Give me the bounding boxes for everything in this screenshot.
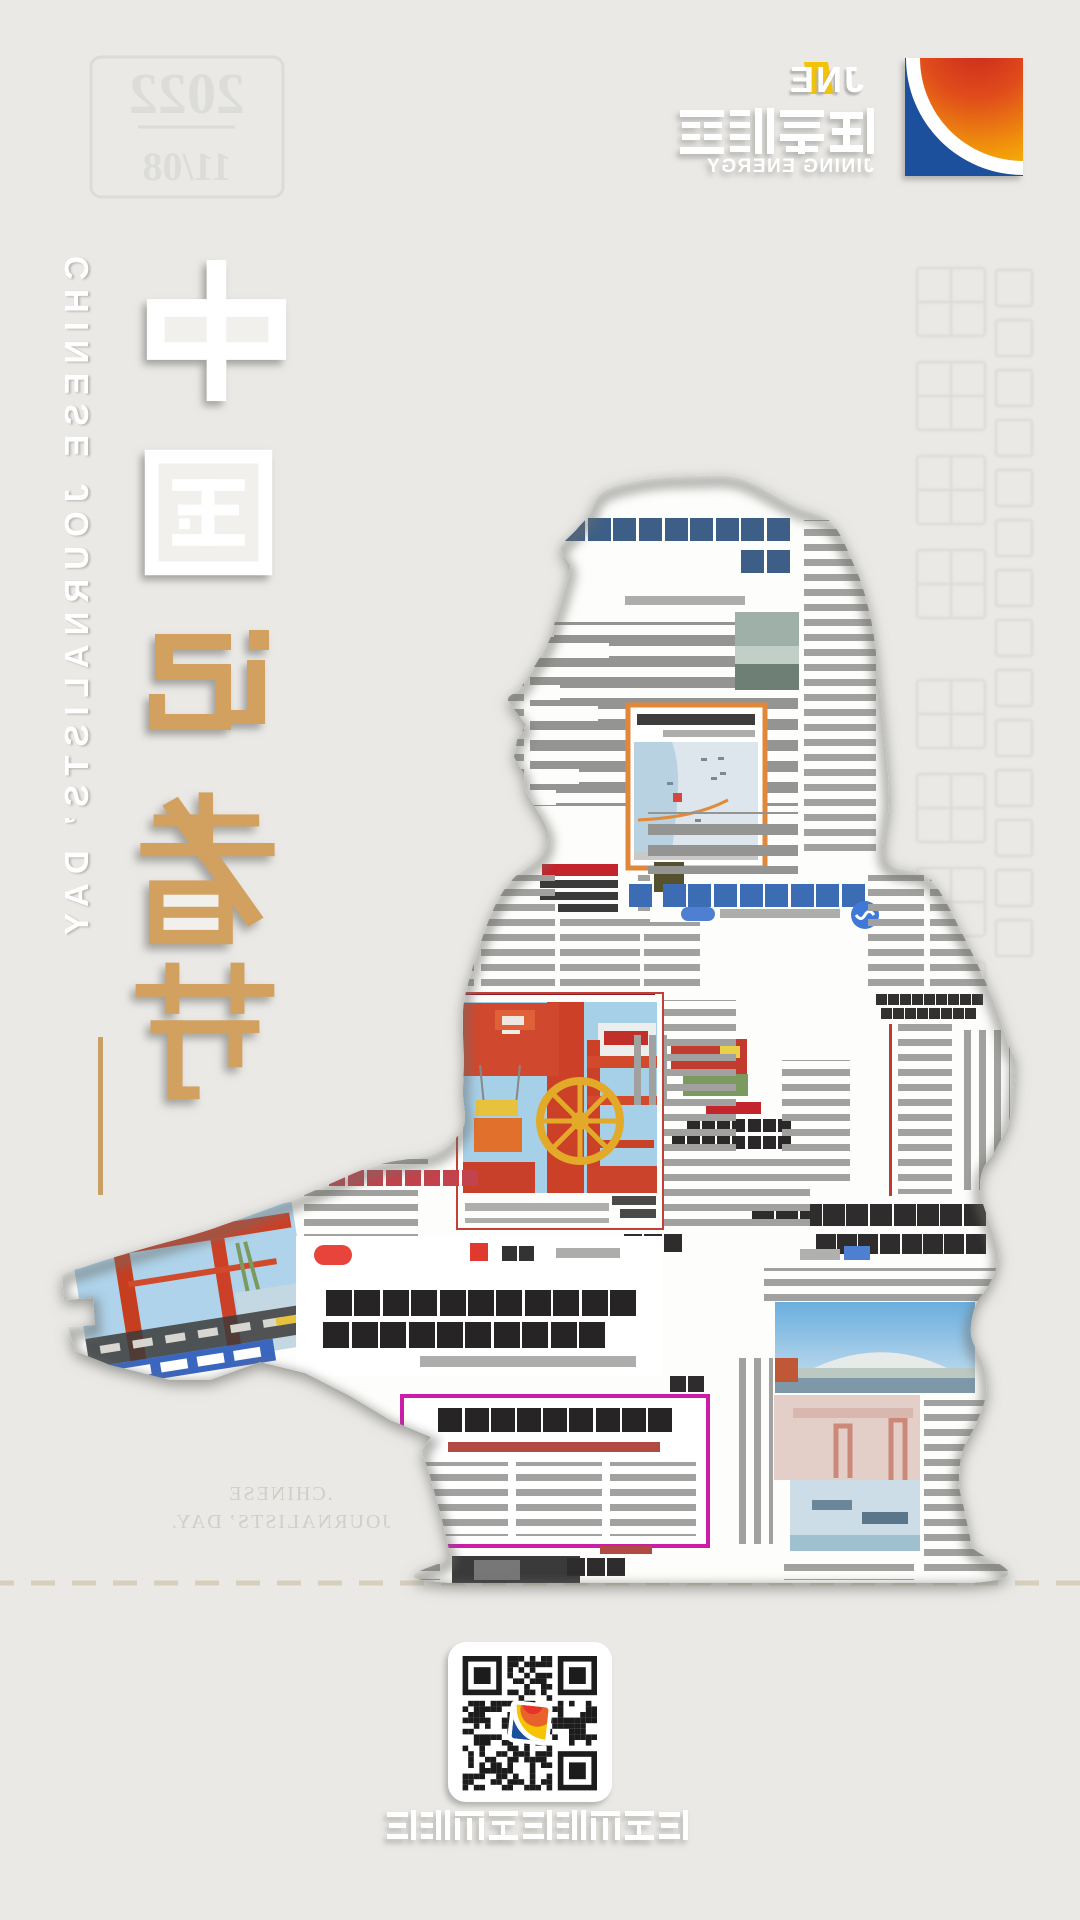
svg-text:.CHINESE: .CHINESE — [227, 1483, 332, 1505]
svg-text:JINING ENERGY: JINING ENERGY — [706, 156, 874, 177]
svg-text:2022: 2022 — [129, 61, 245, 126]
svg-text:CHINESE JOURNALISTS’ DAY: CHINESE JOURNALISTS’ DAY — [58, 256, 95, 944]
svg-text:JNE: JNE — [788, 59, 864, 100]
svg-text:JOURNALISTS’ DAY.: JOURNALISTS’ DAY. — [170, 1511, 390, 1533]
svg-text:11/08: 11/08 — [143, 144, 232, 189]
